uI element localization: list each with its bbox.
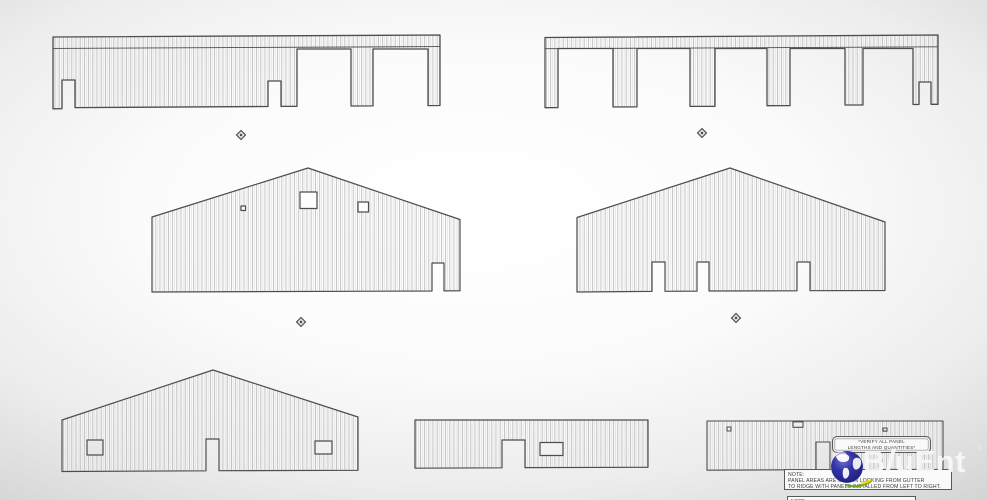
elevation-sidewall-left [53,35,440,109]
note-line-2: TO RIDGE WITH PANELS INSTALLED FROM LEFT… [788,484,948,490]
elevation-gable-endwall-right [577,168,885,292]
verify-note-box: *VERIFY ALL PANEL LENGTHS AND QUANTITIES… [832,436,931,453]
note-box: NOTE: PANEL AREAS ARE SHOWN LOOKING FROM… [784,469,952,490]
partial-note-box: NOTE: [787,496,916,500]
elevation-sidewall-right [545,35,938,108]
verify-line-2: LENGTHS AND QUANTITIES* [833,445,930,451]
elevation-gable-endwall-bottom [62,370,358,472]
diamond-marker [236,130,245,139]
diamond-marker [697,128,706,137]
elevations-svg [0,0,987,500]
elevation-gable-endwall-left [152,168,460,292]
drawing-sheet: *VERIFY ALL PANEL LENGTHS AND QUANTITIES… [0,0,987,500]
elevation-wall-bottom-center [415,420,648,468]
note-line-1: PANEL AREAS ARE SHOWN LOOKING FROM GUTTE… [788,478,948,484]
diamond-marker [296,317,305,326]
diamond-marker [731,313,740,322]
